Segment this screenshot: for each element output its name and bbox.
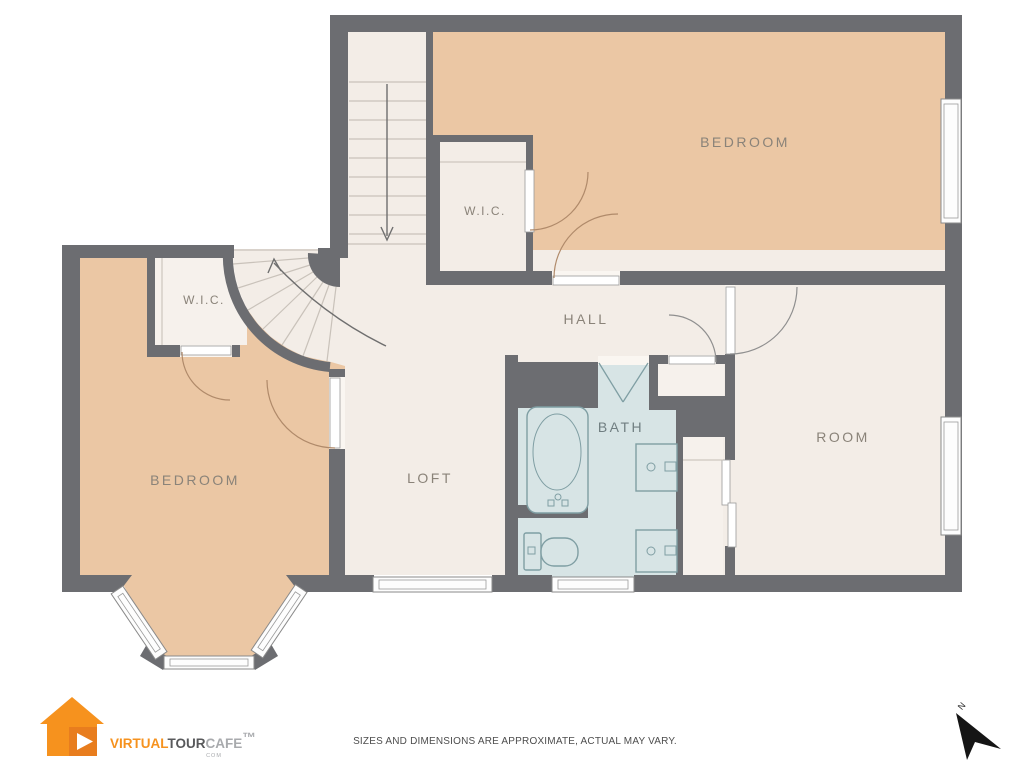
north-compass: N <box>956 700 1001 760</box>
closet-sliding-door-2 <box>728 503 736 547</box>
bedroom-left-label: BEDROOM <box>150 472 240 488</box>
wic-top-label: W.I.C. <box>464 204 506 218</box>
loft-window <box>373 577 492 592</box>
wic-left-door <box>181 346 231 355</box>
virtualtourcafe-logo: VIRTUALTOURCAFE™ COM <box>40 697 256 759</box>
wic-top-door <box>525 170 534 232</box>
sink-vanity-bottom <box>636 530 677 572</box>
bedroom-top-label: BEDROOM <box>700 134 790 150</box>
room-closet-floor <box>683 437 723 578</box>
logo-wordmark: VIRTUALTOURCAFE™ <box>110 730 256 751</box>
hall-closet-floor <box>658 360 724 396</box>
north-label: N <box>956 700 968 711</box>
bath-door-opening <box>598 356 649 365</box>
hall-closet-door <box>669 356 715 364</box>
wic-left-label: W.I.C. <box>183 293 225 307</box>
bath-label: BATH <box>598 419 644 435</box>
bay-window-center <box>164 656 254 669</box>
north-arrow-icon <box>956 713 1001 760</box>
logo-house-roof-icon <box>40 697 104 724</box>
loft-label: LOFT <box>407 470 453 486</box>
closet-sliding-door-1 <box>722 460 730 505</box>
room-label: ROOM <box>816 429 870 445</box>
bedroom-top-door <box>553 276 619 285</box>
floor-plan-drawing: BEDROOM W.I.C. HALL W.I.C. BEDROOM LOFT … <box>0 0 1024 768</box>
bedroom-top-window <box>941 99 961 223</box>
bedroom-left-door <box>330 378 340 448</box>
room-door <box>726 287 735 354</box>
room-window <box>941 417 961 535</box>
disclaimer-text: SIZES AND DIMENSIONS ARE APPROXIMATE, AC… <box>353 736 677 747</box>
floor-plan-page: BEDROOM W.I.C. HALL W.I.C. BEDROOM LOFT … <box>0 0 1024 768</box>
logo-tld: COM <box>206 753 222 759</box>
bathtub <box>527 407 588 513</box>
sink-vanity-top <box>636 444 677 491</box>
hall-label: HALL <box>563 311 608 327</box>
bath-window <box>552 577 634 592</box>
toilet <box>524 533 578 570</box>
